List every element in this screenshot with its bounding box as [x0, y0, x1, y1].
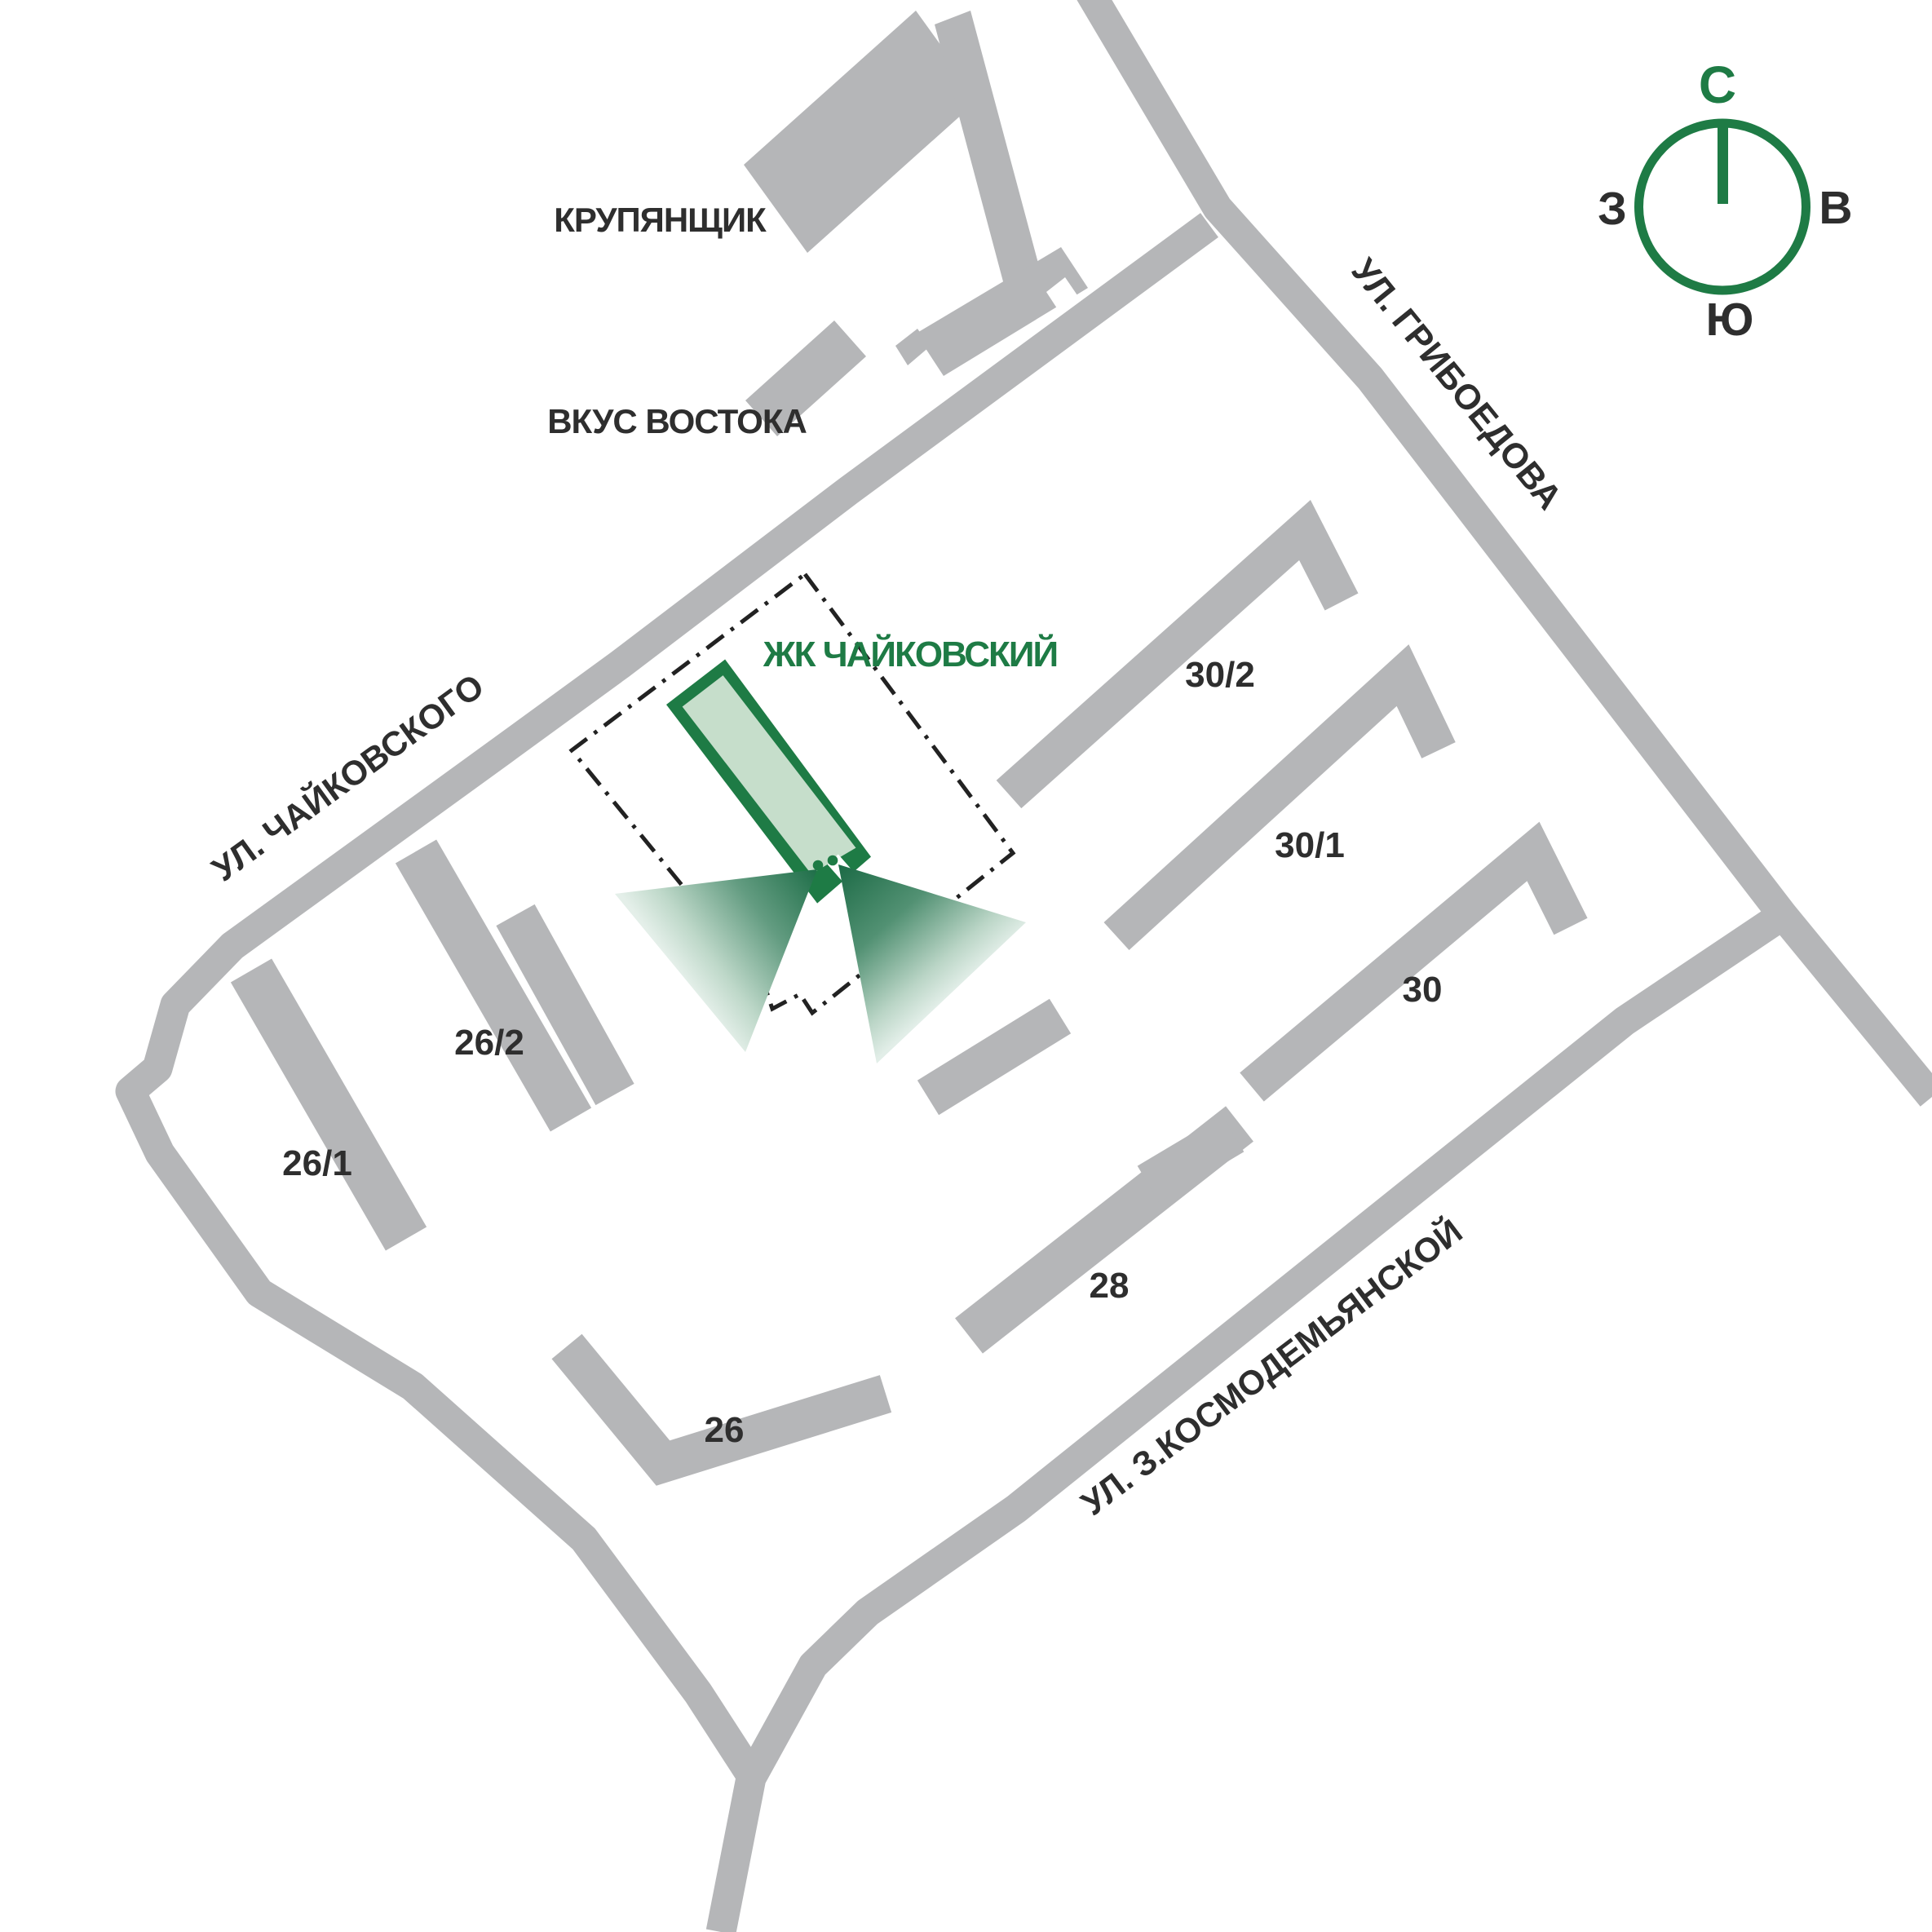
svg-text:30: 30 [1403, 970, 1443, 1010]
svg-text:30/2: 30/2 [1185, 655, 1255, 695]
svg-text:28: 28 [1090, 1266, 1130, 1306]
svg-text:26/2: 26/2 [454, 1023, 524, 1063]
svg-text:З: З [1598, 183, 1627, 235]
svg-text:КРУПЯНЩИК: КРУПЯНЩИК [554, 201, 767, 239]
svg-text:ВКУС ВОСТОКА: ВКУС ВОСТОКА [547, 402, 807, 440]
svg-text:26/1: 26/1 [282, 1143, 352, 1183]
svg-text:30/1: 30/1 [1275, 825, 1345, 865]
svg-text:С: С [1699, 55, 1736, 114]
svg-text:Ю: Ю [1706, 294, 1754, 346]
svg-text:26: 26 [705, 1410, 745, 1450]
svg-text:ЖК ЧАЙКОВСКИЙ: ЖК ЧАЙКОВСКИЙ [763, 633, 1057, 674]
svg-text:В: В [1819, 182, 1852, 234]
